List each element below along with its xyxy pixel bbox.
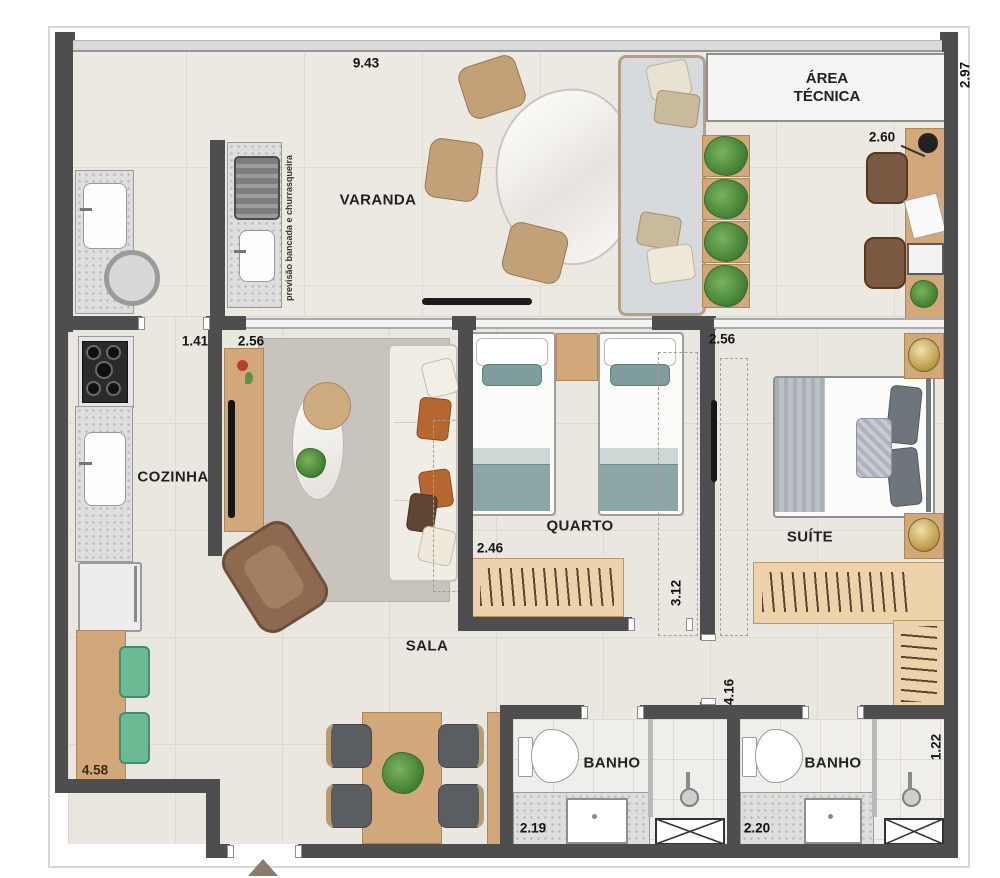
room-label-banho1: BANHO: [584, 755, 641, 772]
dim-varanda-width: 9.43: [353, 56, 379, 71]
fridge-handle: [134, 566, 137, 622]
vase-flower-icon: [237, 360, 248, 371]
burner-4: [86, 381, 101, 396]
burner-1: [86, 345, 101, 360]
quarto-nightstand: [556, 333, 598, 381]
banho1-shower-box: [655, 818, 725, 845]
grill-icon: [234, 156, 280, 220]
sala-chair-1: [326, 724, 372, 768]
dim-shower-width: 1.22: [929, 734, 944, 760]
churrasqueira-faucet-icon: [234, 250, 246, 253]
suite-lamp-2: [908, 518, 940, 552]
dim-kitchen-depth: 4.58: [82, 763, 108, 778]
coffee-table-tray: [303, 382, 351, 430]
dim-office-width: 2.60: [869, 130, 895, 145]
sala-chair-3: [438, 724, 484, 768]
suite-tv: [711, 400, 717, 482]
banho1-shower-partition: [648, 719, 653, 817]
office-chair-1: [866, 152, 908, 204]
kitchen-sink: [84, 432, 126, 506]
suite-headboard: [926, 378, 931, 512]
dim-suite-width: 2.56: [709, 332, 735, 347]
jamb-suite-door-b: [701, 698, 716, 705]
jamb-quarto-door-b: [686, 618, 693, 631]
suite-bed-foot-blanket: [775, 378, 825, 512]
banho2-shower-arm: [908, 772, 912, 790]
sala-chair-4: [438, 784, 484, 828]
wall-sala-quarto: [458, 330, 473, 631]
room-label-varanda: VARANDA: [340, 192, 417, 209]
dim-banho2-width: 2.20: [744, 821, 770, 836]
room-label-area-tecnica: ÁREA TÉCNICA: [772, 70, 882, 106]
wall-left-upper: [55, 48, 73, 332]
sala-tv: [228, 400, 235, 518]
wall-left-lower: [55, 330, 68, 793]
room-label-quarto: QUARTO: [546, 518, 613, 535]
wall-quarto-suite: [700, 330, 715, 640]
kitchen-faucet-icon: [79, 462, 92, 465]
wall-between-banhos: [727, 705, 740, 858]
jamb-banho1-door-a: [581, 706, 588, 719]
dim-sala-opening: 2.56: [238, 334, 264, 349]
floor-plan: ÁREA TÉCNICA: [0, 0, 1000, 878]
fridge: [78, 562, 142, 632]
banho2-shower-box: [884, 818, 944, 845]
wall-quarto-bottom: [458, 617, 632, 631]
dim-quarto-width: 2.46: [477, 541, 503, 556]
kitchen-stool-2: [119, 712, 150, 764]
varanda-railing: [73, 40, 942, 52]
burner-3: [95, 361, 113, 379]
suite-pillow-accent: [856, 418, 892, 478]
wall-varanda-block1: [206, 316, 246, 330]
banho1-shower-arm: [686, 772, 690, 790]
note-churrasqueira: previsão bancada e churrasqueira: [284, 155, 294, 301]
dim-right-depth: 2.97: [958, 62, 973, 88]
wall-right: [944, 48, 958, 858]
laundry-faucet-icon: [80, 208, 92, 211]
wall-bottom-main: [298, 844, 958, 858]
wall-varanda-block2: [452, 316, 476, 330]
wall-banho-top2: [640, 705, 805, 719]
banho1-sink: [566, 798, 628, 844]
jamb-banho2-door-a: [802, 706, 809, 719]
banho2-sink-drain: [828, 814, 833, 819]
burner-5: [106, 381, 121, 396]
wall-banho1-left: [500, 705, 513, 858]
jamb-kitchen-door-a: [138, 317, 145, 330]
vase-leaf-icon: [245, 372, 253, 384]
dim-kitchen-opening: 1.41: [182, 334, 208, 349]
room-label-sala: SALA: [406, 638, 448, 655]
quarto-bed1-pillow: [476, 338, 548, 366]
jamb-banho2-door-b: [857, 706, 864, 719]
suite-wardrobe-hangers-v: [901, 626, 937, 702]
bench-pillow-4: [646, 243, 697, 285]
bench-pillow-2: [653, 89, 701, 129]
office-chair-2: [864, 237, 906, 289]
area-tecnica-box: ÁREA TÉCNICA: [706, 53, 948, 122]
banho2-sink: [804, 798, 862, 844]
entrance-arrow-icon: [248, 859, 278, 876]
dim-banho1-width: 2.19: [520, 821, 546, 836]
wall-laundry-right: [210, 140, 225, 316]
quarto-bed1-accent-pillow: [482, 364, 542, 386]
quarto-bed1-band: [472, 448, 550, 464]
room-label-suite: SUÍTE: [787, 529, 833, 546]
wall-banho-top3: [860, 705, 944, 719]
varanda-tv: [422, 298, 532, 305]
churrasqueira-sink: [239, 230, 275, 282]
jamb-kitchen-door-b: [203, 317, 210, 330]
jamb-entrance-a: [227, 845, 234, 858]
laundry-sink: [83, 183, 127, 249]
banho2-shower-partition: [872, 719, 877, 817]
jamb-suite-door-a: [701, 634, 716, 641]
burner-2: [106, 345, 121, 360]
varanda-chair-2: [423, 137, 485, 204]
room-label-banho2: BANHO: [805, 755, 862, 772]
banho1-shower-head-icon: [680, 788, 699, 807]
desk-monitor: [907, 243, 944, 275]
jamb-banho1-door-b: [637, 706, 644, 719]
jamb-entrance-b: [295, 845, 302, 858]
washing-machine: [104, 250, 160, 306]
wall-kitchen-sala: [208, 330, 222, 556]
quarto-wardrobe-hangers: [480, 568, 614, 606]
banho2-shower-head-icon: [902, 788, 921, 807]
sala-chair-2: [326, 784, 372, 828]
kitchen-stool-1: [119, 646, 150, 698]
desk-lamp-icon: [918, 133, 938, 153]
suite-wardrobe-hangers-h: [762, 572, 912, 612]
room-label-cozinha: COZINHA: [137, 469, 208, 486]
suite-provision-dashed: [720, 358, 748, 636]
dim-suite-depth: 4.16: [722, 679, 737, 705]
jamb-quarto-door-a: [628, 618, 635, 631]
dim-quarto-depth: 3.12: [669, 580, 684, 606]
wall-step-horizontal: [55, 779, 220, 793]
quarto-window: [476, 318, 654, 329]
suite-window: [714, 318, 944, 329]
suite-lamp-1: [908, 338, 940, 372]
wall-varanda-block3: [652, 316, 716, 330]
quarto-bed1-blanket: [472, 464, 550, 511]
wall-laundry-bottom: [68, 316, 142, 330]
sala-sliding-door: [246, 318, 454, 329]
banho1-sink-drain: [592, 814, 597, 819]
